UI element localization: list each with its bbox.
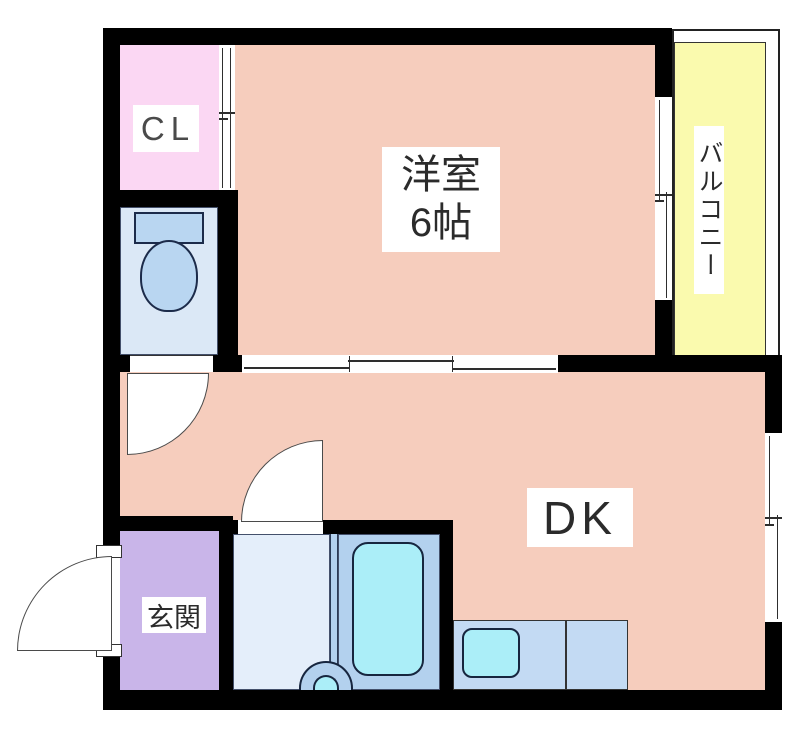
sliding-door-panel-line xyxy=(452,368,556,370)
western-room-size: 6帖 xyxy=(410,200,472,247)
toilet-bowl xyxy=(140,240,198,312)
floor-plan: CL 洋室 6帖 バルコニー DK 玄関 xyxy=(0,0,800,730)
dk-label: DK xyxy=(527,488,633,547)
western-room-label: 洋室 6帖 xyxy=(382,147,500,252)
closet-door-tick xyxy=(219,118,228,120)
balcony-window-tick xyxy=(655,194,672,196)
wall-closet-bottom xyxy=(120,190,238,207)
bathtub xyxy=(352,542,424,676)
balcony-window xyxy=(655,97,672,300)
closet-door-tick xyxy=(219,112,235,114)
wall-top xyxy=(103,28,672,45)
wall-toilet-right xyxy=(218,207,238,355)
kitchen-counter-divider xyxy=(565,620,567,690)
balcony-window-line xyxy=(666,192,667,298)
sliding-door-divider xyxy=(349,356,350,372)
wall-bathroom-right xyxy=(440,534,453,690)
dk-window-tick xyxy=(765,524,774,526)
western-room-name: 洋室 xyxy=(401,152,481,199)
dk-window-line xyxy=(769,436,770,525)
wall-entrance-top xyxy=(103,516,233,531)
closet-door-line xyxy=(230,48,231,188)
dk-window-line xyxy=(777,515,778,619)
western-dk-sliding-door xyxy=(242,355,558,373)
balcony-label: バルコニー xyxy=(694,126,724,294)
wall-entrance-right xyxy=(219,516,233,690)
balcony-window-tick xyxy=(655,200,664,202)
dk-window xyxy=(765,433,782,622)
kitchen-sink xyxy=(462,628,520,678)
toilet-door-opening xyxy=(130,355,213,372)
entrance-label: 玄関 xyxy=(142,597,206,633)
bathroom-door-opening xyxy=(238,520,323,534)
sliding-door-panel-line xyxy=(348,360,454,362)
balcony-window-line xyxy=(659,100,660,200)
wall-bottom xyxy=(103,690,782,710)
entrance-door-swing xyxy=(17,556,112,651)
sliding-door-panel-line xyxy=(244,367,350,369)
closet-label: CL xyxy=(133,105,199,152)
dk-window-tick xyxy=(765,517,782,519)
